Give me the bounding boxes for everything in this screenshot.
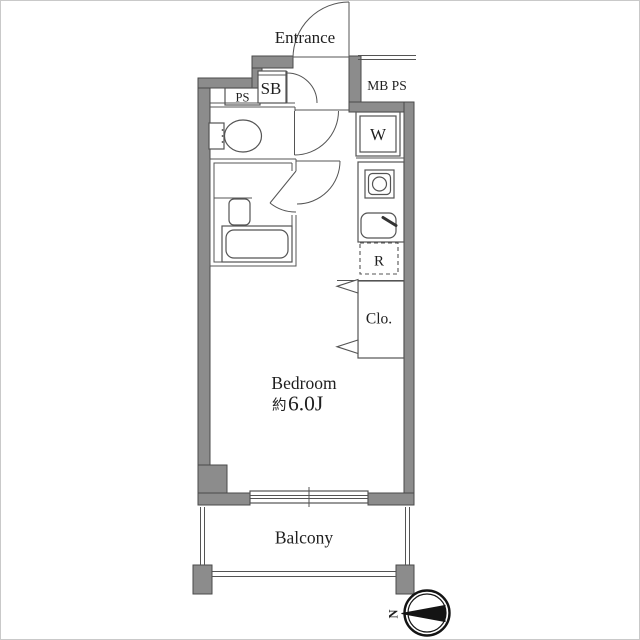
balcony-label: Balcony — [275, 528, 334, 548]
bottom-wall-left — [198, 493, 250, 505]
pipe-space-label: PS — [236, 91, 250, 105]
shoe-box-label: SB — [261, 79, 282, 98]
kitchen-door-arc — [297, 161, 340, 204]
floor-plan-svg: N Entrance MB PS PS SB W R Clo. Bedroom … — [0, 0, 640, 640]
toilet-icon — [209, 120, 262, 152]
refrigerator-label: R — [374, 254, 384, 270]
bathtub-icon — [222, 226, 292, 262]
toilet-bowl — [225, 120, 262, 152]
compass-icon: N — [387, 591, 450, 636]
washbasin-icon — [229, 199, 250, 225]
balcony-post-right — [396, 565, 414, 594]
window-symbol — [250, 487, 368, 507]
bedroom-label: Bedroom — [271, 373, 337, 393]
meterbox-label: MB PS — [367, 78, 406, 93]
toilet-room — [209, 103, 349, 155]
shoe-box-door-arc — [287, 73, 317, 103]
entrance-label: Entrance — [275, 28, 335, 47]
toilet-door-arc — [295, 111, 339, 155]
bathroom-door-leaf — [270, 171, 296, 203]
bathroom — [210, 159, 296, 266]
kitchen-doorway — [296, 161, 340, 204]
outer-wall-right — [404, 102, 414, 505]
bathroom-door-arc — [270, 203, 296, 212]
balcony-post-left — [193, 565, 212, 594]
outer-wall-left — [198, 78, 210, 505]
washer-label: W — [370, 125, 387, 144]
floor-plan-page: N Entrance MB PS PS SB W R Clo. Bedroom … — [0, 0, 640, 640]
compass-north-label: N — [387, 609, 401, 618]
bedroom-area-prefix: 約 — [272, 397, 287, 414]
closet-fold-arrow-top — [337, 280, 358, 294]
sink-icon — [361, 213, 396, 238]
closet-fold-arrow-bottom — [337, 340, 358, 354]
bedroom-area-label: 6.0J — [288, 392, 323, 416]
corridor-boundary-line — [358, 56, 416, 60]
bottom-wall-right — [368, 493, 414, 505]
top-wall — [252, 56, 293, 68]
stove-icon — [365, 170, 394, 198]
closet-label: Clo. — [366, 311, 392, 328]
kitchen-counter — [358, 162, 404, 242]
